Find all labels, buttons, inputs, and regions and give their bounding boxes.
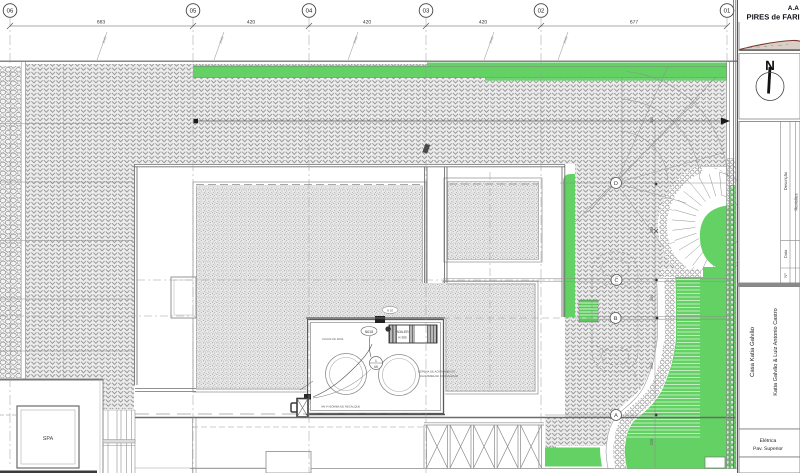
svg-text:A: A: [614, 413, 618, 419]
svg-text:VAI P/ BOMBA DE RECALQUE: VAI P/ BOMBA DE RECALQUE: [321, 405, 360, 409]
svg-text:420: 420: [247, 20, 256, 26]
svg-text:368: 368: [649, 362, 654, 369]
svg-text:05: 05: [190, 8, 197, 15]
svg-text:Descrição: Descrição: [783, 171, 788, 190]
svg-text:Revisões: Revisões: [794, 193, 799, 210]
svg-text:N 10: N 10: [387, 309, 394, 313]
svg-text:04: 04: [306, 8, 313, 15]
svg-text:386: 386: [649, 226, 654, 233]
svg-text:663: 663: [97, 20, 106, 26]
svg-text:677: 677: [630, 20, 639, 26]
svg-text:420: 420: [363, 20, 372, 26]
svg-text:1: 1: [375, 359, 377, 363]
svg-text:02: 02: [538, 8, 545, 15]
svg-text:BOILER: BOILER: [396, 330, 409, 334]
svg-text:Pav. Superior: Pav. Superior: [753, 446, 783, 452]
svg-text:345: 345: [649, 116, 654, 123]
svg-text:N018: N018: [365, 330, 374, 334]
svg-text:SPA: SPA: [43, 436, 54, 442]
svg-text:01: 01: [724, 8, 731, 15]
svg-text:Data: Data: [783, 249, 788, 258]
svg-text:R-300: R-300: [398, 336, 407, 340]
svg-text:PIRES de FARIA: PIRES de FARIA: [747, 13, 800, 22]
svg-text:CHAVE DE BOIA: CHAVE DE BOIA: [322, 337, 344, 341]
svg-text:Elétrica: Elétrica: [760, 438, 777, 444]
svg-text:215: 215: [649, 438, 654, 445]
svg-text:03: 03: [423, 8, 430, 15]
svg-text:D: D: [614, 181, 618, 187]
svg-text:ESPERA DE ACIONAMENTO: ESPERA DE ACIONAMENTO: [418, 370, 456, 374]
svg-text:Casa Katia Galvão: Casa Katia Galvão: [749, 326, 756, 377]
svg-text:306: 306: [649, 294, 654, 301]
svg-text:C: C: [615, 278, 619, 284]
svg-text:B: B: [614, 316, 618, 322]
svg-text:06: 06: [7, 8, 14, 15]
svg-text:68: 68: [374, 365, 378, 369]
svg-text:A.A: A.A: [788, 5, 800, 12]
svg-text:420: 420: [479, 20, 488, 26]
svg-text:Nº: Nº: [783, 273, 788, 278]
svg-text:Katia Galvão & Luiz Antonio Ca: Katia Galvão & Luiz Antonio Castro: [772, 308, 779, 395]
